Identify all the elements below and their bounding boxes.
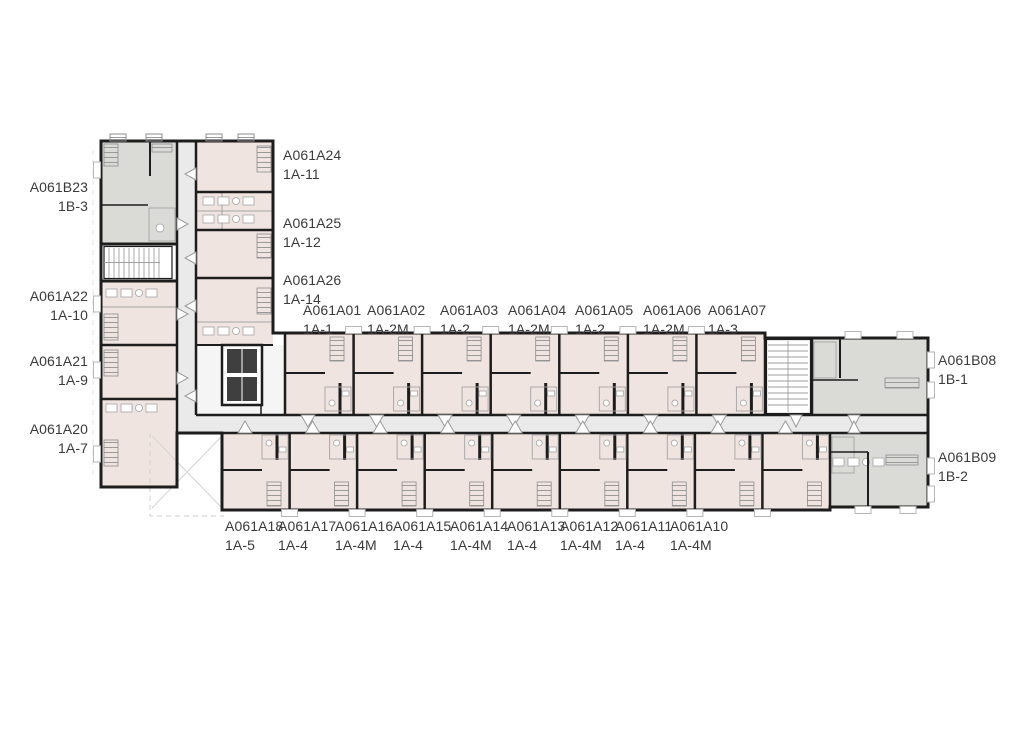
- unit-type: 1A-12: [283, 233, 341, 252]
- unit-plan-a061a22[interactable]: [101, 281, 177, 345]
- unit-label-a061a24: A061A24 1A-11: [283, 146, 341, 183]
- unit-label-a061a01: A061A01 1A-1: [303, 301, 361, 338]
- unit-code: A061A21: [30, 352, 88, 371]
- unit-type: 1A-10: [30, 306, 88, 325]
- unit-code: A061A17: [278, 517, 336, 536]
- unit-label-a061a10: A061A10 1A-4M: [670, 517, 728, 554]
- unit-code: A061A26: [283, 271, 341, 290]
- unit-label-a061a25: A061A25 1A-12: [283, 214, 341, 251]
- unit-type: 1B-3: [30, 197, 88, 216]
- unit-label-a061b08: A061B08 1B-1: [938, 351, 996, 388]
- unit-type: 1A-2: [575, 320, 633, 339]
- unit-type: 1A-4M: [335, 536, 393, 555]
- unit-code: A061B23: [30, 178, 88, 197]
- unit-code: A061A12: [560, 517, 618, 536]
- unit-code: A061A04: [508, 301, 566, 320]
- unit-plan-a061a25[interactable]: [196, 230, 273, 278]
- floor-plan-drawing: [0, 0, 1024, 729]
- unit-code: A061A24: [283, 146, 341, 165]
- unit-code: A061A03: [440, 301, 498, 320]
- unit-code: A061A11: [615, 517, 672, 536]
- unit-label-a061a20: A061A20 1A-7: [30, 420, 88, 457]
- unit-type: 1A-9: [30, 371, 88, 390]
- unit-type: 1A-3: [708, 320, 766, 339]
- unit-type: 1B-2: [938, 467, 996, 486]
- unit-code: A061A20: [30, 420, 88, 439]
- unit-code: A061A13: [507, 517, 565, 536]
- unit-a061b09-area[interactable]: [830, 433, 928, 507]
- unit-label-a061a16: A061A16 1A-4M: [335, 517, 393, 554]
- unit-type: 1A-11: [283, 165, 341, 184]
- stairs-right: [767, 340, 811, 414]
- unit-label-a061a13: A061A13 1A-4: [507, 517, 565, 554]
- floor-plan-page: A061B23 1B-3 A061A22 1A-10 A061A21 1A-9 …: [0, 0, 1024, 729]
- unit-plan-a061a21[interactable]: [101, 345, 177, 399]
- unit-plan-a061a26[interactable]: [196, 278, 273, 345]
- unit-label-a061a15: A061A15 1A-4: [393, 517, 451, 554]
- unit-code: A061A02: [367, 301, 425, 320]
- unit-label-a061a18: A061A18 1A-5: [225, 517, 283, 554]
- unit-code: A061A07: [708, 301, 766, 320]
- unit-code: A061A15: [393, 517, 451, 536]
- unit-type: 1A-2: [440, 320, 498, 339]
- unit-type: 1A-4: [507, 536, 565, 555]
- unit-type: 1A-4: [393, 536, 451, 555]
- unit-type: 1A-5: [225, 536, 283, 555]
- unit-code: A061A18: [225, 517, 283, 536]
- unit-type: 1A-7: [30, 439, 88, 458]
- unit-label-a061a12: A061A12 1A-4M: [560, 517, 618, 554]
- unit-label-a061a22: A061A22 1A-10: [30, 287, 88, 324]
- unit-label-a061a06: A061A06 1A-2M: [643, 301, 701, 338]
- unit-label-a061a17: A061A17 1A-4: [278, 517, 336, 554]
- corridor-vertical: [177, 141, 196, 433]
- unit-a061b08-area[interactable]: [812, 338, 928, 415]
- unit-type: 1B-1: [938, 370, 996, 389]
- unit-code: A061A01: [303, 301, 361, 320]
- unit-plan-a061a20[interactable]: [101, 399, 177, 487]
- unit-code: A061A06: [643, 301, 701, 320]
- unit-label-a061a04: A061A04 1A-2M: [508, 301, 566, 338]
- elevator-core: [222, 345, 262, 405]
- unit-code: A061A05: [575, 301, 633, 320]
- unit-code: A061A16: [335, 517, 393, 536]
- unit-code: A061A14: [450, 517, 508, 536]
- unit-label-a061b23: A061B23 1B-3: [30, 178, 88, 215]
- unit-label-a061b09: A061B09 1B-2: [938, 448, 996, 485]
- unit-type: 1A-1: [303, 320, 361, 339]
- unit-plan-a061a24[interactable]: [196, 141, 273, 230]
- unit-label-a061a03: A061A03 1A-2: [440, 301, 498, 338]
- unit-label-a061a21: A061A21 1A-9: [30, 352, 88, 389]
- unit-type: 1A-2M: [643, 320, 701, 339]
- stairs-left: [104, 247, 172, 279]
- unit-label-a061a14: A061A14 1A-4M: [450, 517, 508, 554]
- unit-type: 1A-4: [615, 536, 672, 555]
- unit-type: 1A-4: [278, 536, 336, 555]
- unit-type: 1A-4M: [670, 536, 728, 555]
- unit-type: 1A-2M: [367, 320, 425, 339]
- unit-code: A061A25: [283, 214, 341, 233]
- unit-type: 1A-2M: [508, 320, 566, 339]
- unit-label-a061a11: A061A11 1A-4: [615, 517, 672, 554]
- unit-code: A061B09: [938, 448, 996, 467]
- unit-label-a061a05: A061A05 1A-2: [575, 301, 633, 338]
- bottom-row-units-area: [222, 433, 830, 510]
- unit-code: A061B08: [938, 351, 996, 370]
- unit-code: A061A10: [670, 517, 728, 536]
- unit-type: 1A-4M: [560, 536, 618, 555]
- unit-label-a061a07: A061A07 1A-3: [708, 301, 766, 338]
- unit-type: 1A-4M: [450, 536, 508, 555]
- unit-label-a061a02: A061A02 1A-2M: [367, 301, 425, 338]
- unit-code: A061A22: [30, 287, 88, 306]
